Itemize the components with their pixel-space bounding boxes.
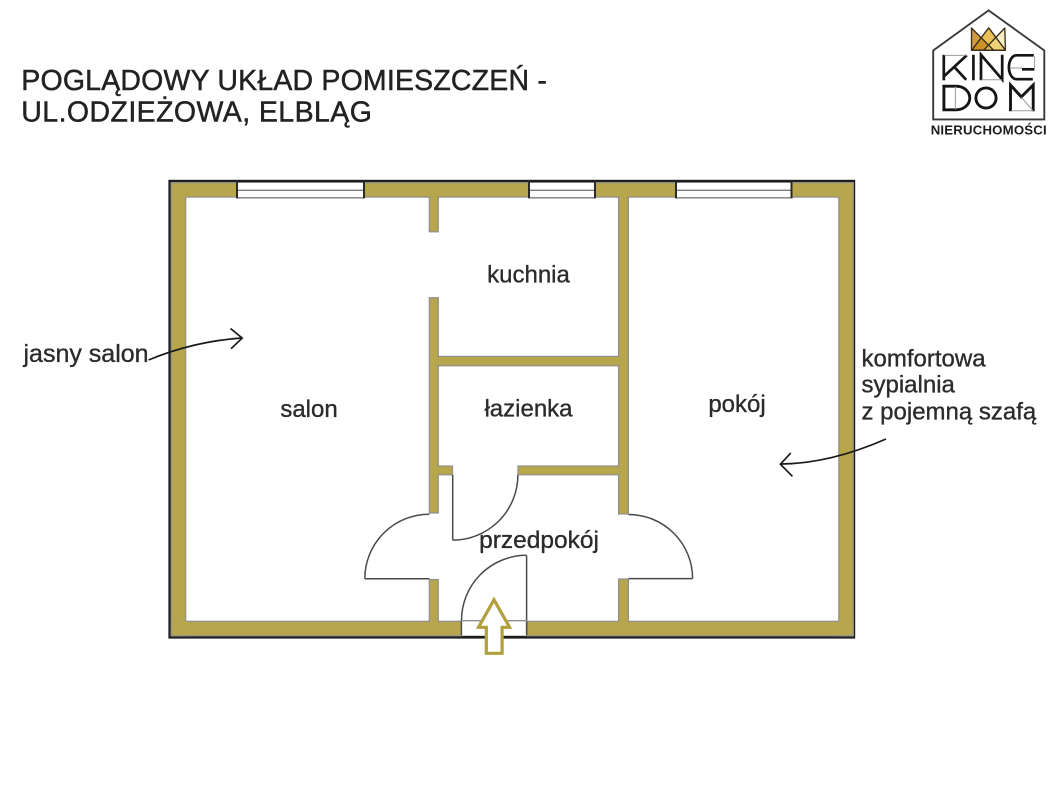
svg-text:salon: salon — [280, 396, 337, 423]
svg-text:przedpokój: przedpokój — [479, 527, 599, 554]
svg-text:komfortowa: komfortowa — [862, 346, 987, 373]
svg-text:sypialnia: sypialnia — [862, 372, 956, 399]
svg-text:pokój: pokój — [708, 391, 765, 418]
svg-text:POGLĄDOWY UKŁAD POMIESZCZEŃ -: POGLĄDOWY UKŁAD POMIESZCZEŃ - — [21, 65, 547, 97]
svg-text:kuchnia: kuchnia — [487, 262, 570, 289]
svg-text:z pojemną szafą: z pojemną szafą — [862, 398, 1037, 425]
svg-text:jasny salon: jasny salon — [23, 340, 149, 368]
svg-text:NIERUCHOMOŚCI: NIERUCHOMOŚCI — [931, 123, 1047, 138]
svg-text:łazienka: łazienka — [484, 396, 573, 423]
svg-text:UL.ODZIEŻOWA, ELBLĄG: UL.ODZIEŻOWA, ELBLĄG — [21, 97, 372, 129]
